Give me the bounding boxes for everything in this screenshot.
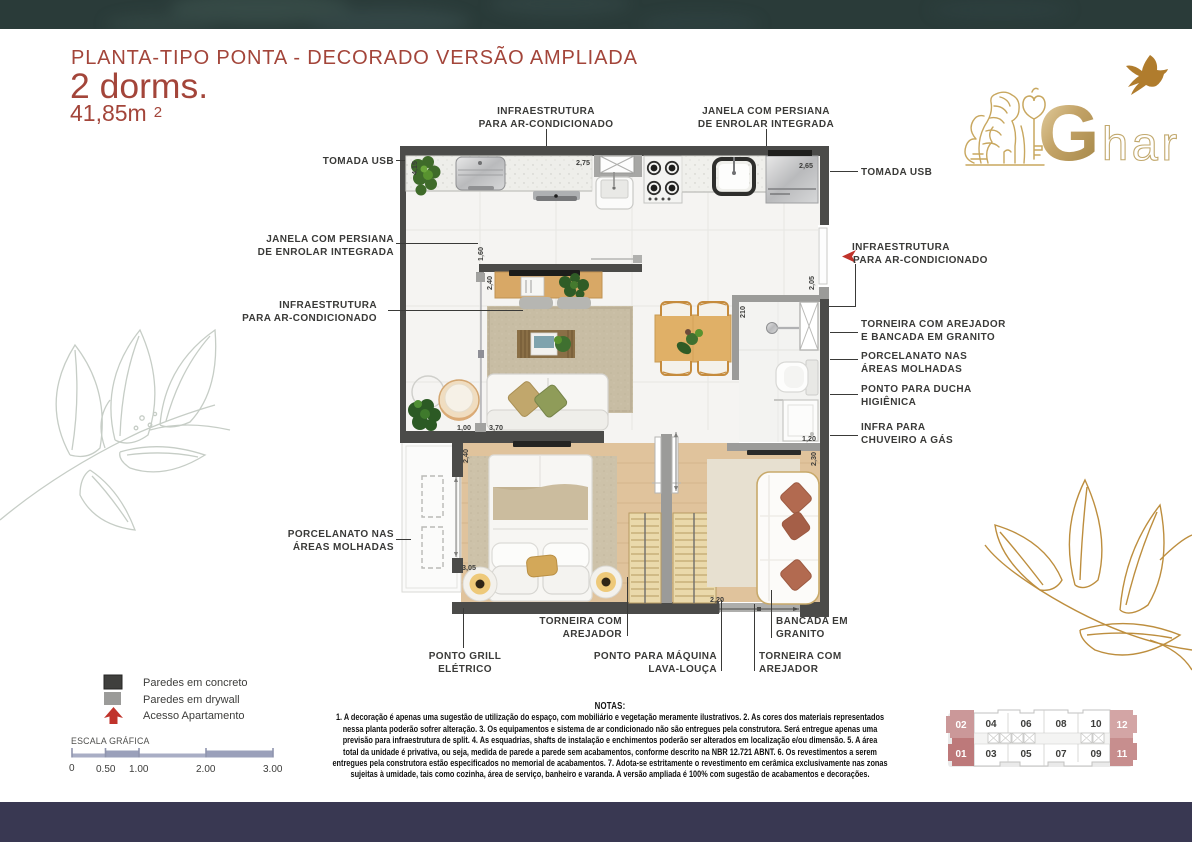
svg-text:4,15: 4,15 (410, 161, 419, 175)
svg-text:11: 11 (1117, 749, 1128, 760)
svg-text:10: 10 (1090, 719, 1102, 730)
svg-text:INFRAESTRUTURA: INFRAESTRUTURA (497, 106, 595, 117)
svg-text:GRANITO: GRANITO (776, 629, 825, 640)
svg-text:3.00: 3.00 (263, 764, 283, 775)
svg-text:PONTO PARA DUCHA: PONTO PARA DUCHA (861, 384, 972, 395)
svg-text:E BANCADA EM GRANITO: E BANCADA EM GRANITO (861, 332, 995, 343)
svg-text:INFRAESTRUTURA: INFRAESTRUTURA (852, 242, 950, 253)
svg-text:ÁREAS MOLHADAS: ÁREAS MOLHADAS (293, 540, 394, 553)
svg-text:HIGIÊNICA: HIGIÊNICA (861, 395, 916, 408)
svg-text:TOMADA USB: TOMADA USB (861, 167, 932, 178)
svg-text:G: G (1038, 88, 1099, 177)
svg-text:07: 07 (1055, 749, 1067, 760)
svg-text:3,05: 3,05 (462, 563, 476, 572)
svg-text:AREJADOR: AREJADOR (759, 664, 819, 675)
svg-text:06: 06 (1020, 719, 1032, 730)
svg-text:JANELA COM PERSIANA: JANELA COM PERSIANA (266, 234, 394, 245)
svg-text:0.50: 0.50 (96, 764, 116, 775)
svg-text:04: 04 (985, 719, 997, 730)
svg-text:PONTO PARA MÁQUINA: PONTO PARA MÁQUINA (594, 649, 717, 662)
svg-text:05: 05 (1020, 749, 1032, 760)
svg-text:ÁREAS MOLHADAS: ÁREAS MOLHADAS (861, 362, 962, 375)
svg-text:12: 12 (1116, 720, 1128, 731)
svg-text:ESCALA GRÁFICA: ESCALA GRÁFICA (71, 736, 150, 746)
svg-text:02: 02 (955, 720, 967, 731)
svg-text:INFRAESTRUTURA: INFRAESTRUTURA (279, 300, 377, 311)
svg-text:ELÉTRICO: ELÉTRICO (438, 662, 492, 675)
svg-text:2,40: 2,40 (485, 276, 494, 290)
svg-text:Acesso Apartamento: Acesso Apartamento (143, 710, 245, 722)
svg-text:2,65: 2,65 (799, 161, 813, 170)
svg-text:PARA AR-CONDICIONADO: PARA AR-CONDICIONADO (853, 255, 988, 266)
svg-text:TORNEIRA COM: TORNEIRA COM (759, 651, 842, 662)
svg-text:BANCADA EM: BANCADA EM (776, 616, 848, 627)
svg-text:1.00: 1.00 (129, 764, 149, 775)
svg-text:09: 09 (1090, 749, 1102, 760)
svg-text:3,70: 3,70 (489, 423, 503, 432)
svg-text:PARA AR-CONDICIONADO: PARA AR-CONDICIONADO (242, 313, 377, 324)
svg-text:2,05: 2,05 (807, 276, 816, 290)
svg-text:har: har (1102, 117, 1181, 170)
svg-text:1,00: 1,00 (457, 423, 471, 432)
svg-text:2,75: 2,75 (576, 158, 590, 167)
svg-text:PORCELANATO NAS: PORCELANATO NAS (861, 351, 967, 362)
svg-text:Paredes em concreto: Paredes em concreto (143, 677, 248, 689)
svg-text:DE ENROLAR INTEGRADA: DE ENROLAR INTEGRADA (698, 119, 834, 130)
svg-text:PONTO GRILL: PONTO GRILL (429, 651, 502, 662)
svg-text:2.00: 2.00 (196, 764, 216, 775)
svg-text:1,20: 1,20 (802, 434, 816, 443)
svg-text:PARA AR-CONDICIONADO: PARA AR-CONDICIONADO (479, 119, 614, 130)
svg-text:1,60: 1,60 (476, 247, 485, 261)
svg-text:DE ENROLAR INTEGRADA: DE ENROLAR INTEGRADA (258, 247, 394, 258)
svg-text:PORCELANATO NAS: PORCELANATO NAS (288, 529, 394, 540)
svg-text:JANELA COM PERSIANA: JANELA COM PERSIANA (702, 106, 830, 117)
svg-text:03: 03 (985, 749, 997, 760)
svg-text:TORNEIRA COM AREJADOR: TORNEIRA COM AREJADOR (861, 319, 1006, 330)
svg-text:08: 08 (1055, 719, 1067, 730)
svg-text:Paredes em drywall: Paredes em drywall (143, 694, 240, 706)
svg-text:INFRA PARA: INFRA PARA (861, 422, 926, 433)
svg-text:210: 210 (738, 306, 747, 318)
svg-text:0: 0 (69, 763, 75, 774)
svg-text:TOMADA USB: TOMADA USB (323, 156, 394, 167)
svg-text:2,40: 2,40 (461, 449, 470, 463)
svg-text:LAVA-LOUÇA: LAVA-LOUÇA (648, 664, 717, 675)
svg-text:2,30: 2,30 (809, 452, 818, 466)
svg-text:AREJADOR: AREJADOR (563, 629, 623, 640)
svg-text:01: 01 (955, 749, 967, 760)
svg-text:TORNEIRA COM: TORNEIRA COM (539, 616, 622, 627)
svg-text:CHUVEIRO A GÁS: CHUVEIRO A GÁS (861, 433, 953, 446)
